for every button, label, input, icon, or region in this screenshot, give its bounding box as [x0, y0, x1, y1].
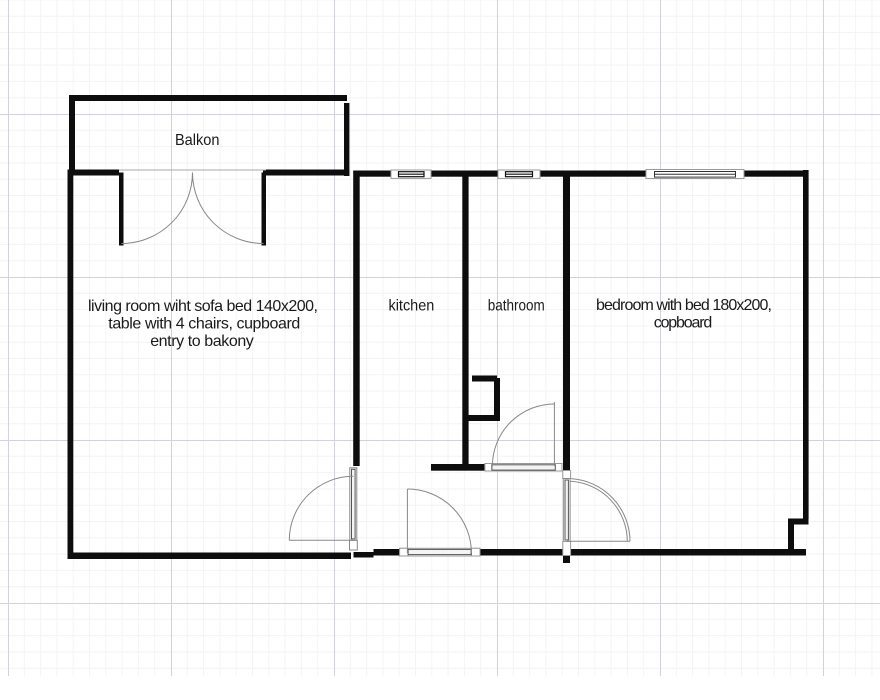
- svg-text:copboard: copboard: [654, 314, 713, 331]
- svg-text:bathroom: bathroom: [488, 298, 545, 315]
- svg-text:bedroom with bed 180x200,: bedroom with bed 180x200,: [596, 297, 772, 314]
- svg-text:entry to bakony: entry to bakony: [150, 333, 254, 350]
- svg-text:table with 4 chairs, cupboard: table with 4 chairs, cupboard: [108, 315, 300, 332]
- svg-text:Balkon: Balkon: [175, 132, 220, 149]
- svg-text:living room wiht sofa bed 140x: living room wiht sofa bed 140x200,: [88, 298, 318, 315]
- svg-text:kitchen: kitchen: [389, 298, 435, 315]
